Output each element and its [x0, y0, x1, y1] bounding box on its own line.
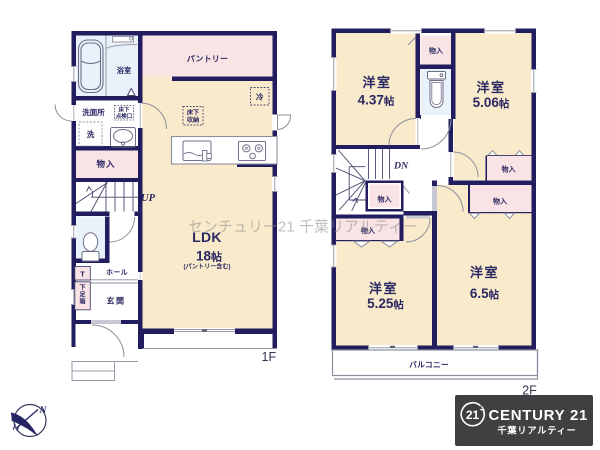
svg-text:UP: UP [141, 193, 156, 204]
svg-text:5.06帖: 5.06帖 [473, 95, 510, 110]
svg-text:下: 下 [79, 285, 85, 292]
svg-text:センチュリー21 千葉リアルティー: センチュリー21 千葉リアルティー [188, 219, 418, 236]
svg-text:バルコニー: バルコニー [409, 361, 449, 370]
svg-text:物入: 物入 [502, 165, 516, 174]
svg-text:床下: 床下 [187, 109, 199, 117]
svg-text:18帖: 18帖 [196, 249, 222, 264]
svg-text:床下: 床下 [119, 106, 130, 114]
svg-text:1F: 1F [262, 350, 277, 364]
svg-text:DN: DN [393, 160, 409, 171]
svg-text:箱: 箱 [79, 298, 85, 306]
svg-text:冷: 冷 [256, 92, 264, 102]
svg-text:N: N [39, 406, 48, 416]
svg-text:千葉リアルティー: 千葉リアルティー [497, 425, 576, 436]
svg-text:6.5帖: 6.5帖 [470, 286, 500, 301]
svg-text:足: 足 [79, 291, 85, 299]
svg-text:T: T [80, 270, 85, 279]
svg-text:玄関: 玄関 [107, 296, 126, 306]
svg-text:物入: 物入 [378, 195, 392, 204]
svg-text:(パントリー含む): (パントリー含む) [183, 262, 230, 270]
svg-text:洋室: 洋室 [362, 75, 391, 90]
svg-text:パントリー: パントリー [187, 53, 228, 63]
svg-text:洋室: 洋室 [476, 80, 505, 95]
svg-text:ホール: ホール [106, 269, 128, 277]
svg-text:物入: 物入 [429, 46, 443, 55]
svg-text:物入: 物入 [96, 159, 115, 169]
svg-text:CENTURY 21: CENTURY 21 [489, 407, 589, 424]
svg-text:浴室: 浴室 [117, 66, 131, 75]
svg-text:点検口: 点検口 [116, 112, 132, 120]
svg-text:物入: 物入 [493, 197, 507, 206]
svg-text:洗面所: 洗面所 [82, 107, 105, 117]
svg-text:5.25帖: 5.25帖 [367, 296, 404, 311]
svg-text:収納: 収納 [187, 116, 199, 124]
svg-text:21: 21 [466, 408, 480, 422]
svg-text:洋室: 洋室 [369, 281, 398, 296]
svg-text:洗: 洗 [87, 129, 95, 139]
svg-text:4.37帖: 4.37帖 [358, 93, 395, 108]
svg-text:洋室: 洋室 [470, 265, 499, 280]
